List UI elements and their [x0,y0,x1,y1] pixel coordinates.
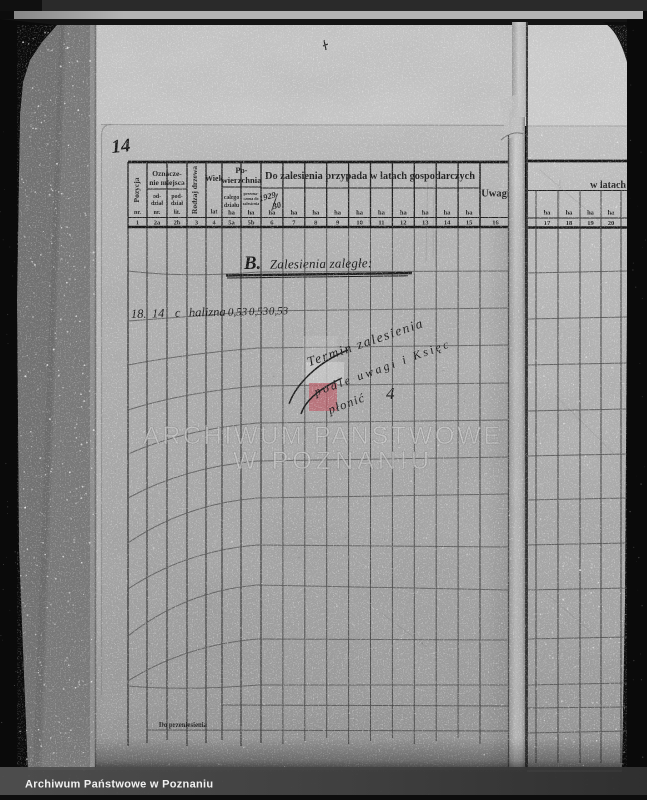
svg-text:Archiwum Państwowe w Poznaniu: Archiwum Państwowe w Poznaniu [25,779,213,791]
